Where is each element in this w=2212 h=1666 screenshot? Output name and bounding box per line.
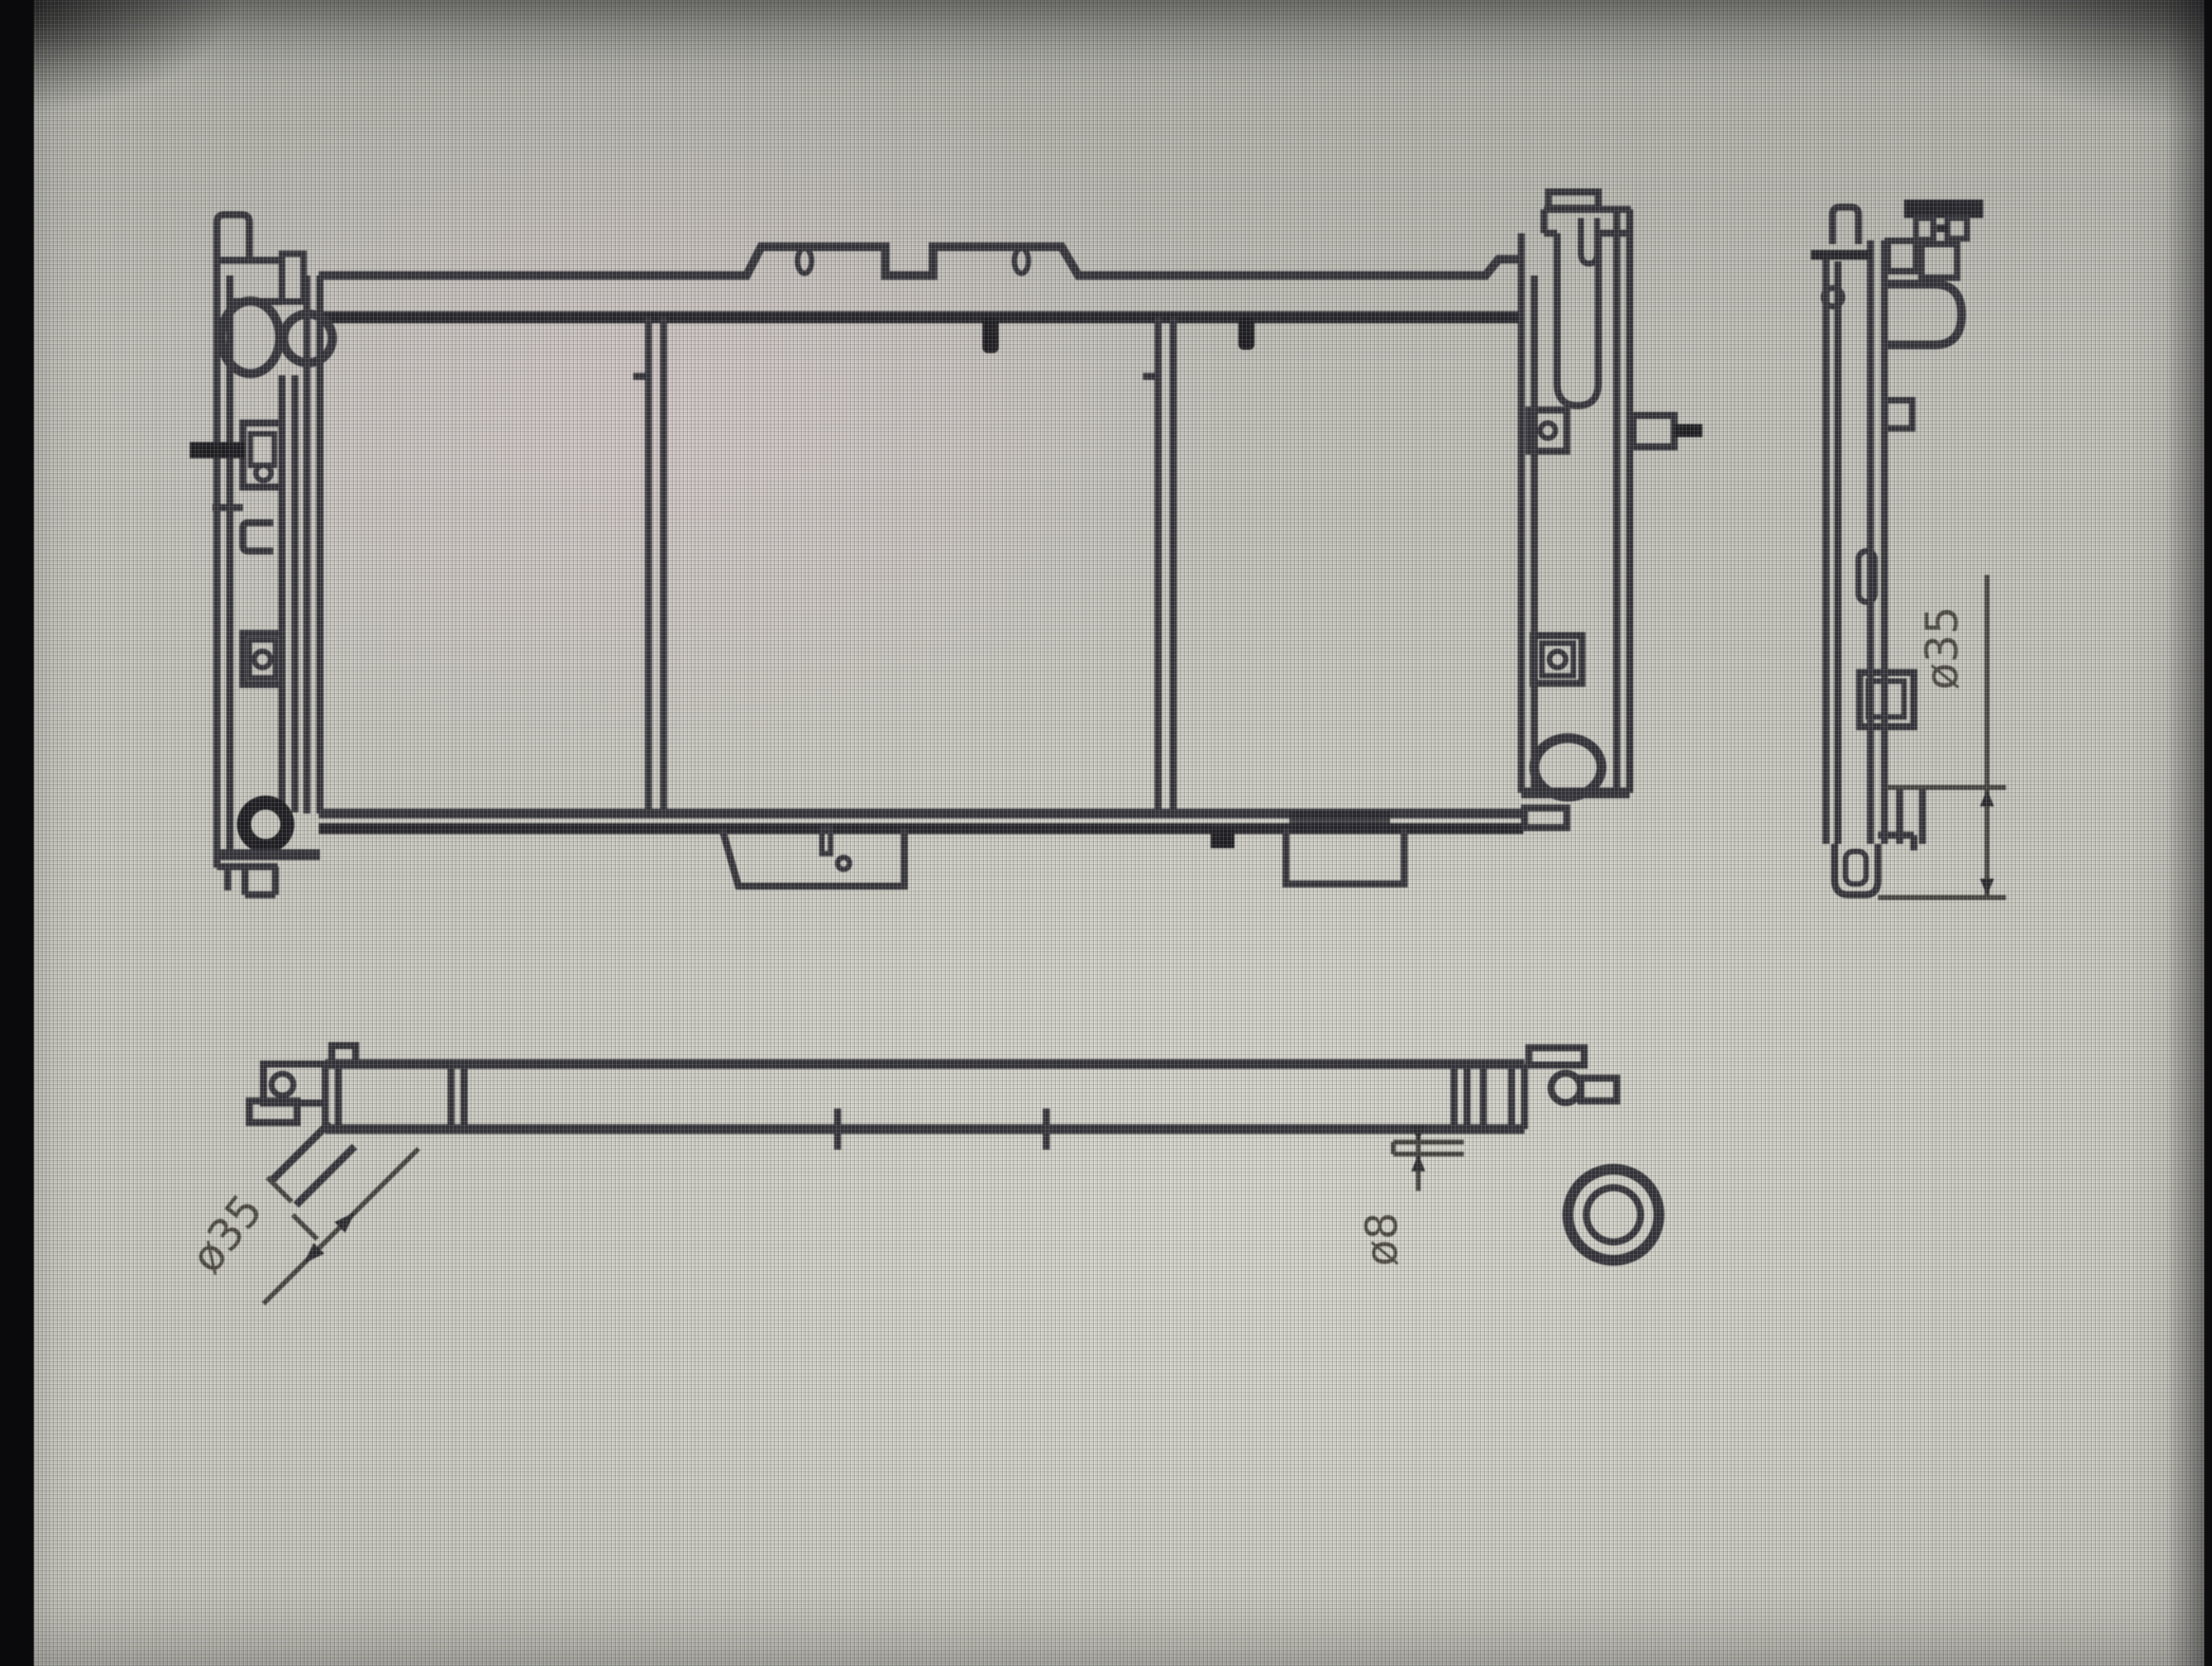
- front-bottom-rail: [319, 811, 1523, 886]
- screen-photo: ø35 ø8 ø35: [0, 0, 2212, 1666]
- bottom-bracket: [1286, 829, 1404, 884]
- tab-hole-left: [798, 248, 812, 273]
- dim-bottom-left-35: ø35: [181, 1149, 419, 1304]
- tab-hole-right: [1014, 248, 1028, 273]
- bottom-outlet-outer: [1568, 1169, 1659, 1260]
- side-top-tab: [1832, 207, 1859, 244]
- right-pin-bracket: [1633, 415, 1674, 447]
- right-mount-pin: [1674, 424, 1702, 437]
- front-left-tank: [190, 215, 332, 895]
- side-step-bracket: [1885, 400, 1912, 428]
- front-right-tank: [1521, 192, 1702, 828]
- side-strip: [1826, 240, 1885, 844]
- side-slot: [1859, 551, 1875, 602]
- front-top-rail: [319, 247, 1523, 353]
- bottom-left-tab: [332, 1046, 356, 1065]
- bottom-dark-tab: [1211, 829, 1234, 848]
- rail-pin-left: [982, 317, 999, 353]
- side-view: [1811, 200, 1983, 895]
- dim-label-bottom-right-8: ø8: [1356, 1212, 1407, 1266]
- screen-bezel-left: [0, 0, 34, 1666]
- bottom-right-tab: [1529, 1048, 1584, 1065]
- dimension-annotations: ø35 ø8 ø35: [181, 575, 2006, 1304]
- screen-bezel-right: [2204, 0, 2212, 1666]
- side-hole: [1824, 288, 1842, 306]
- bottom-right-pipe-end: [1551, 1073, 1580, 1103]
- left-drain-ring: [244, 803, 287, 846]
- right-filler-neck: [1557, 233, 1598, 406]
- bottom-tray: [722, 829, 904, 886]
- bottom-outlet-inner: [1586, 1188, 1641, 1242]
- left-mount-pin: [190, 442, 245, 458]
- dim-label-bottom-left-35: ø35: [181, 1185, 273, 1283]
- left-top-tab: [217, 215, 249, 260]
- dim-bottom-right-8: ø8: [1356, 1125, 1464, 1266]
- front-view: [190, 192, 1702, 895]
- dim-label-side-35: ø35: [1917, 606, 1968, 690]
- side-upper-port: [1885, 284, 1962, 345]
- left-clip: [243, 523, 273, 551]
- radiator-technical-drawing: ø35 ø8 ø35: [0, 0, 2212, 1666]
- bottom-bar: [325, 1064, 1525, 1129]
- core-dividers: [633, 317, 1173, 813]
- rail-pin-right: [1238, 317, 1255, 350]
- screen-edge-shadow-right: [2166, 0, 2204, 1666]
- dim-side-35: ø35: [1878, 575, 2006, 898]
- right-bottom-tab: [1525, 808, 1567, 828]
